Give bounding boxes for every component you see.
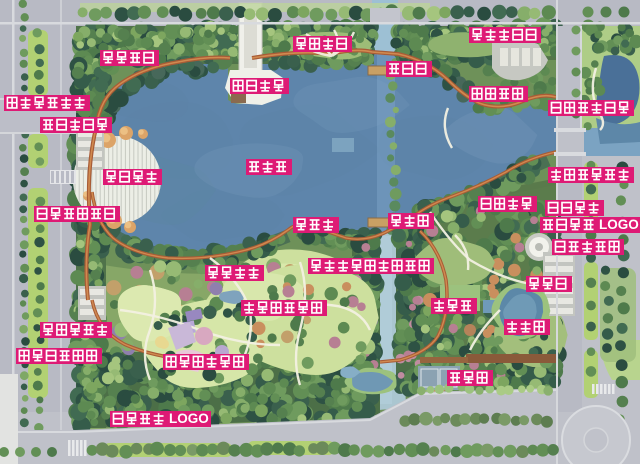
svg-text:LOGO: LOGO bbox=[169, 411, 209, 426]
svg-text:LOGO: LOGO bbox=[599, 217, 639, 232]
